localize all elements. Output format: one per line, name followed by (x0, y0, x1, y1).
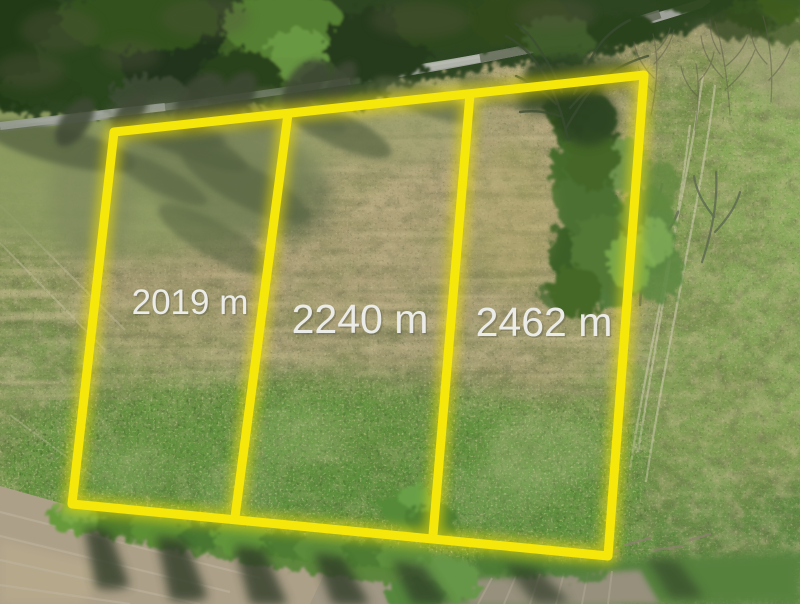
svg-text:2462 m: 2462 m (476, 299, 613, 345)
svg-text:2019 m: 2019 m (132, 283, 249, 322)
svg-text:2240 m: 2240 m (292, 296, 429, 342)
